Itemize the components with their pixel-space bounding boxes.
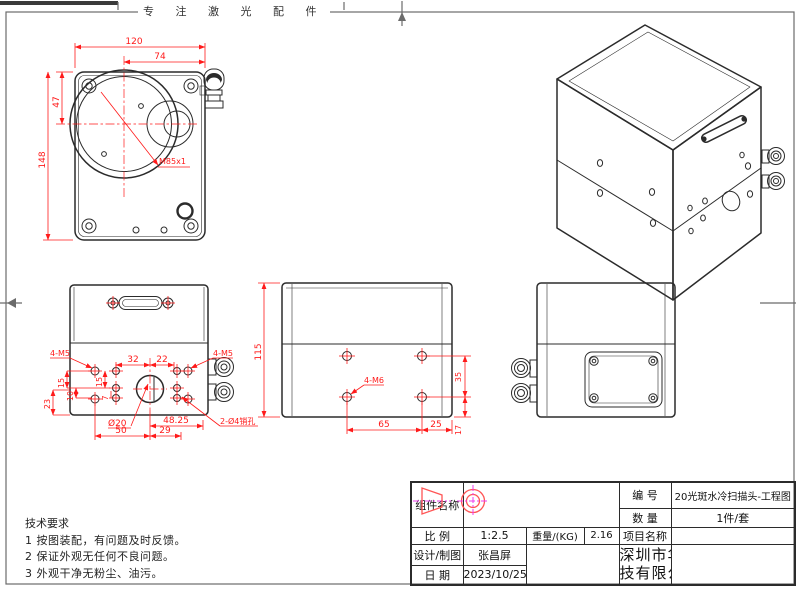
tech-req-item-1: 1 按图装配，有问题及时反馈。 [25,533,186,550]
dim-10: 10 [66,391,75,401]
dim-148: 148 [38,151,48,168]
dim-7: 7 [101,395,110,400]
dim-23: 23 [43,399,52,409]
projection-symbol-cell [526,544,619,585]
dim-15-left: 15 [57,378,66,388]
dim-32: 32 [127,355,138,365]
bottom-view: 4-M5 4-M5 32 22 15 10 15 7 [43,285,258,440]
mounting-holes-right [170,364,195,406]
weight-label: 重量/(KG) [526,527,584,544]
scale-label: 比 例 [411,527,463,544]
tech-req-title: 技术要求 [25,516,186,533]
dim-74: 74 [154,52,166,62]
number-value: 20光斑水冷扫描头-工程图 [671,482,795,508]
dim-47: 47 [52,96,62,107]
label-4m5-right: 4-M5 [213,349,233,358]
thread-label: M85x1 [159,157,186,166]
pneumatic-fittings-bottom [208,358,234,402]
dsub-connector [106,296,175,310]
designer-label: 设计/制图 [411,544,463,565]
iso-face-holes [597,152,752,234]
front-view: 120 74 47 148 M85x1 [38,37,224,240]
dim-22: 22 [156,355,167,365]
top-banner: 专 注 激 光 配 件 [138,3,330,19]
dim-15-inner: 15 [95,377,104,387]
title-block: 组件名称 编 号 20光斑水冷扫描头-工程图 数 量 1件/套 比 例 1:2.… [410,481,796,586]
dim-65: 65 [378,420,389,430]
isometric-view [557,25,785,300]
quantity-label: 数 量 [619,508,671,527]
side-dimensions: 4-M6 115 35 17 65 25 [254,283,471,435]
dim-4825: 48.25 [163,416,189,426]
dim-29: 29 [159,426,171,436]
engineering-drawing-page: { "banner": { "text": "专 注 激 光 配 件" }, "… [0,0,800,600]
label-4m6: 4-M6 [364,376,384,385]
company-name-line2: 技有限公司 [620,564,671,583]
weight-value: 2.16 [584,527,619,544]
tech-req-item-3: 3 外观干净无粉尘、油污。 [25,566,186,583]
center-mark-left [0,298,22,308]
quantity-value: 1件/套 [671,508,795,527]
project-name-value [671,527,795,544]
technical-requirements: 技术要求 1 按图装配，有问题及时反馈。 2 保证外观无任何不良问题。 3 外观… [25,516,186,582]
right-side-view [512,283,676,417]
date-value: 2023/10/25 [463,565,526,585]
date-label: 日 期 [411,565,463,585]
pneumatic-fittings-iso [762,148,785,190]
center-mark-top [398,1,406,26]
side-view: 4-M6 115 35 17 65 25 [254,283,471,435]
pneumatic-fittings-side [512,359,538,403]
label-4m5-left: 4-M5 [50,349,70,358]
dim-35: 35 [454,372,463,382]
number-label: 编 号 [619,482,671,508]
dim-25: 25 [430,420,441,430]
designer-value: 张昌屏 [463,544,526,565]
dim-120: 120 [125,37,142,47]
handle [701,116,746,141]
dim-17: 17 [454,425,463,435]
pneumatic-fitting-front [200,69,224,108]
access-plate [585,352,662,407]
company-name-line1: 深圳市华鹏艾伟科 [620,546,671,565]
dim-115: 115 [254,343,264,360]
company-name: 深圳市华鹏艾伟科 技有限公司 [619,544,671,585]
label-pinholes: 2-Ø4销孔 [220,416,255,426]
side-holes [339,348,430,405]
scale-value: 1:2.5 [463,527,526,544]
dim-50: 50 [115,426,127,436]
project-name-label: 项目名称 [619,527,671,544]
tech-req-item-2: 2 保证外观无任何不良问题。 [25,549,186,566]
front-dimensions: 120 74 47 148 M85x1 [38,37,205,240]
